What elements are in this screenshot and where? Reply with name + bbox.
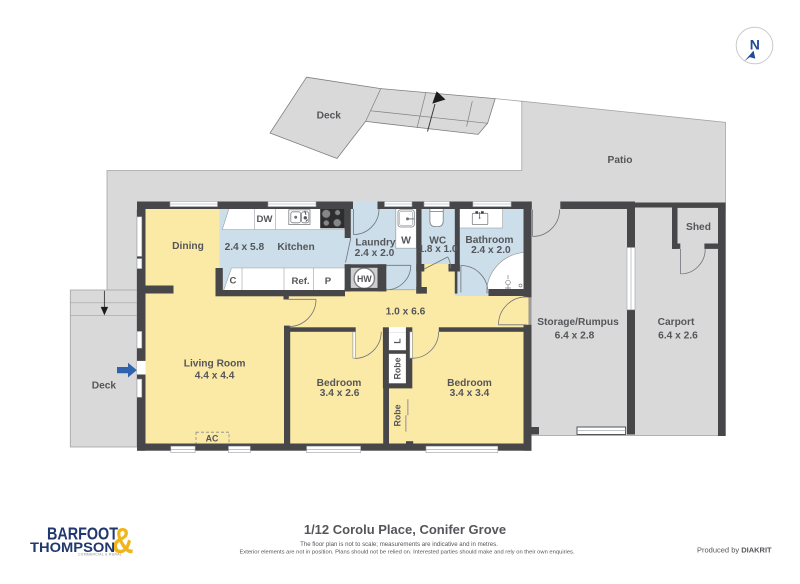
svg-text:Ref.: Ref.	[291, 276, 309, 287]
svg-text:1.0 x 6.6: 1.0 x 6.6	[386, 307, 426, 318]
svg-text:COMMERCIAL & RURAL: COMMERCIAL & RURAL	[78, 553, 122, 557]
svg-text:4.4 x 4.4: 4.4 x 4.4	[195, 371, 235, 382]
svg-text:Deck: Deck	[317, 111, 342, 122]
svg-text:1/12 Corolu Place, Conifer Gro: 1/12 Corolu Place, Conifer Grove	[304, 522, 506, 537]
svg-text:Storage/Rumpus: Storage/Rumpus	[537, 317, 619, 328]
svg-text:2.4 x 2.0: 2.4 x 2.0	[471, 245, 511, 256]
svg-text:Shed: Shed	[686, 222, 711, 233]
svg-text:Patio: Patio	[608, 155, 633, 166]
svg-text:Robe: Robe	[393, 404, 403, 426]
svg-text:3.4 x 3.4: 3.4 x 3.4	[450, 388, 490, 399]
svg-text:L: L	[392, 338, 402, 344]
svg-text:N: N	[750, 37, 760, 53]
svg-text:Dining: Dining	[172, 241, 204, 252]
svg-text:2.4 x 5.8: 2.4 x 5.8	[225, 242, 265, 253]
svg-text:P: P	[325, 276, 332, 287]
svg-text:6.4 x 2.8: 6.4 x 2.8	[555, 331, 595, 342]
svg-text:2.4 x 2.0: 2.4 x 2.0	[355, 248, 395, 259]
svg-text:Carport: Carport	[658, 317, 695, 328]
svg-text:Produced by DIAKRIT: Produced by DIAKRIT	[697, 546, 772, 555]
svg-text:Living Room: Living Room	[184, 359, 246, 370]
svg-text:Laundry: Laundry	[355, 238, 396, 249]
svg-text:AC: AC	[206, 434, 219, 444]
svg-text:W: W	[401, 236, 411, 247]
svg-text:Exterior elements are not in p: Exterior elements are not in position. P…	[239, 550, 575, 556]
svg-text:3.4 x 2.6: 3.4 x 2.6	[320, 388, 360, 399]
svg-text:6.4 x 2.6: 6.4 x 2.6	[658, 331, 698, 342]
svg-text:Robe: Robe	[392, 357, 402, 379]
svg-text:HW: HW	[357, 274, 372, 284]
svg-text:1.8 x 1.0: 1.8 x 1.0	[419, 244, 458, 255]
svg-text:DW: DW	[257, 214, 274, 225]
svg-text:C: C	[230, 276, 237, 287]
svg-text:Deck: Deck	[92, 381, 117, 392]
svg-text:Kitchen: Kitchen	[277, 242, 314, 253]
svg-text:The floor plan is not to scale: The floor plan is not to scale; measurem…	[300, 541, 498, 548]
